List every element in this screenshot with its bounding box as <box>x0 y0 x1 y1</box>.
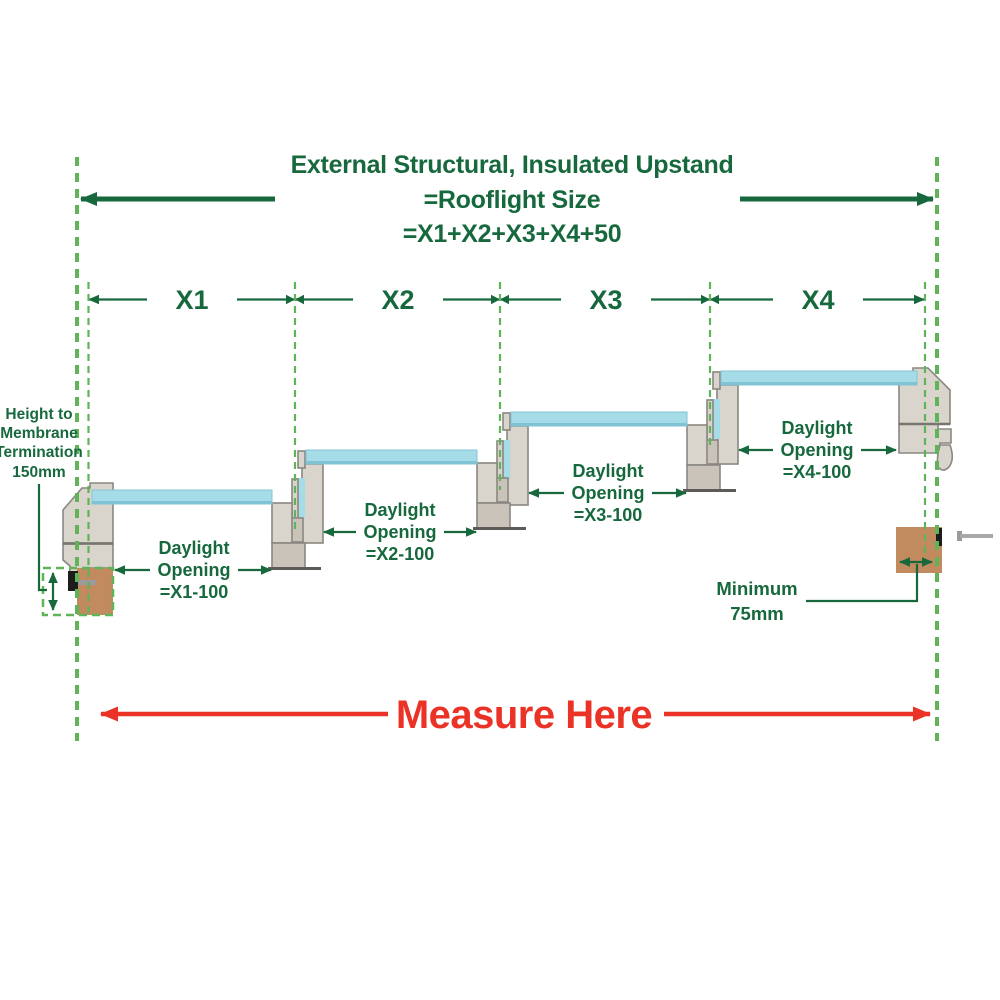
frame-tall-body <box>302 464 323 543</box>
opening-label-line3: =X2-100 <box>366 544 435 564</box>
diagram-canvas: External Structural, Insulated Upstand =… <box>0 0 1000 1000</box>
measure-here-annotation: Measure Here <box>101 693 930 737</box>
frame-lower-body <box>687 425 707 465</box>
opening-label-line3: =X1-100 <box>160 582 229 602</box>
height-label-line3: Termination <box>0 444 83 461</box>
wood-block <box>77 568 113 615</box>
loose-screw <box>960 534 993 538</box>
glass-underside-x3 <box>511 423 687 426</box>
glass-underside-x4 <box>721 382 917 385</box>
frame-lower-body <box>477 463 497 503</box>
daylight-opening-x2: Daylight Opening =X2-100 <box>324 500 476 564</box>
frame-lower-body <box>272 503 292 543</box>
rooflight-upstand-diagram: External Structural, Insulated Upstand =… <box>0 0 1000 1000</box>
daylight-opening-x4: Daylight Opening =X4-100 <box>739 418 896 482</box>
right-wood-kerb <box>896 527 993 573</box>
opening-label-line2: Opening <box>158 560 231 580</box>
opening-label-line1: Daylight <box>364 500 435 520</box>
height-label-line1: Height to <box>5 406 72 423</box>
opening-label-line2: Opening <box>781 440 854 460</box>
opening-label-line1: Daylight <box>781 418 852 438</box>
segment-label-x2: X2 <box>381 285 414 315</box>
glass-underside-x1 <box>92 501 272 504</box>
title-line-1: External Structural, Insulated Upstand <box>291 151 734 179</box>
minimum-label-line1: Minimum <box>716 578 797 599</box>
frame-upper-lip <box>503 413 510 430</box>
frame-tall-body <box>507 426 528 505</box>
title-line-2: =Rooflight Size <box>424 186 601 214</box>
daylight-opening-x3: Daylight Opening =X3-100 <box>529 461 686 525</box>
frame-tall-body <box>717 385 738 464</box>
height-label-line4: 150mm <box>12 464 65 481</box>
opening-label-line2: Opening <box>364 522 437 542</box>
opening-label-line3: =X4-100 <box>783 462 852 482</box>
opening-label-line1: Daylight <box>572 461 643 481</box>
minimum-label-line2: 75mm <box>730 603 783 624</box>
glass-underside-x2 <box>306 461 477 464</box>
frame-upper-lip <box>298 451 305 468</box>
fixing-screw <box>78 580 96 585</box>
height-label-line2: Membrane <box>0 425 78 442</box>
segment-label-x4: X4 <box>801 285 834 315</box>
frame-bottom <box>477 503 510 528</box>
segment-dimension-line: X1 X2 X3 X4 <box>89 283 924 315</box>
opening-label-line2: Opening <box>572 483 645 503</box>
left-wood-kerb <box>68 568 113 615</box>
opening-label-line1: Daylight <box>158 538 229 558</box>
title-line-3: =X1+X2+X3+X4+50 <box>403 220 622 248</box>
segment-label-x1: X1 <box>175 285 208 315</box>
segment-label-x3: X3 <box>589 285 622 315</box>
frame-bottom <box>687 465 720 490</box>
frame-bottom <box>272 543 305 568</box>
frame-upper-lip <box>713 372 720 389</box>
frame-drip-flap <box>937 445 952 470</box>
daylight-opening-x1: Daylight Opening =X1-100 <box>115 538 271 602</box>
measure-here-label: Measure Here <box>396 693 652 737</box>
opening-label-line3: =X3-100 <box>574 505 643 525</box>
